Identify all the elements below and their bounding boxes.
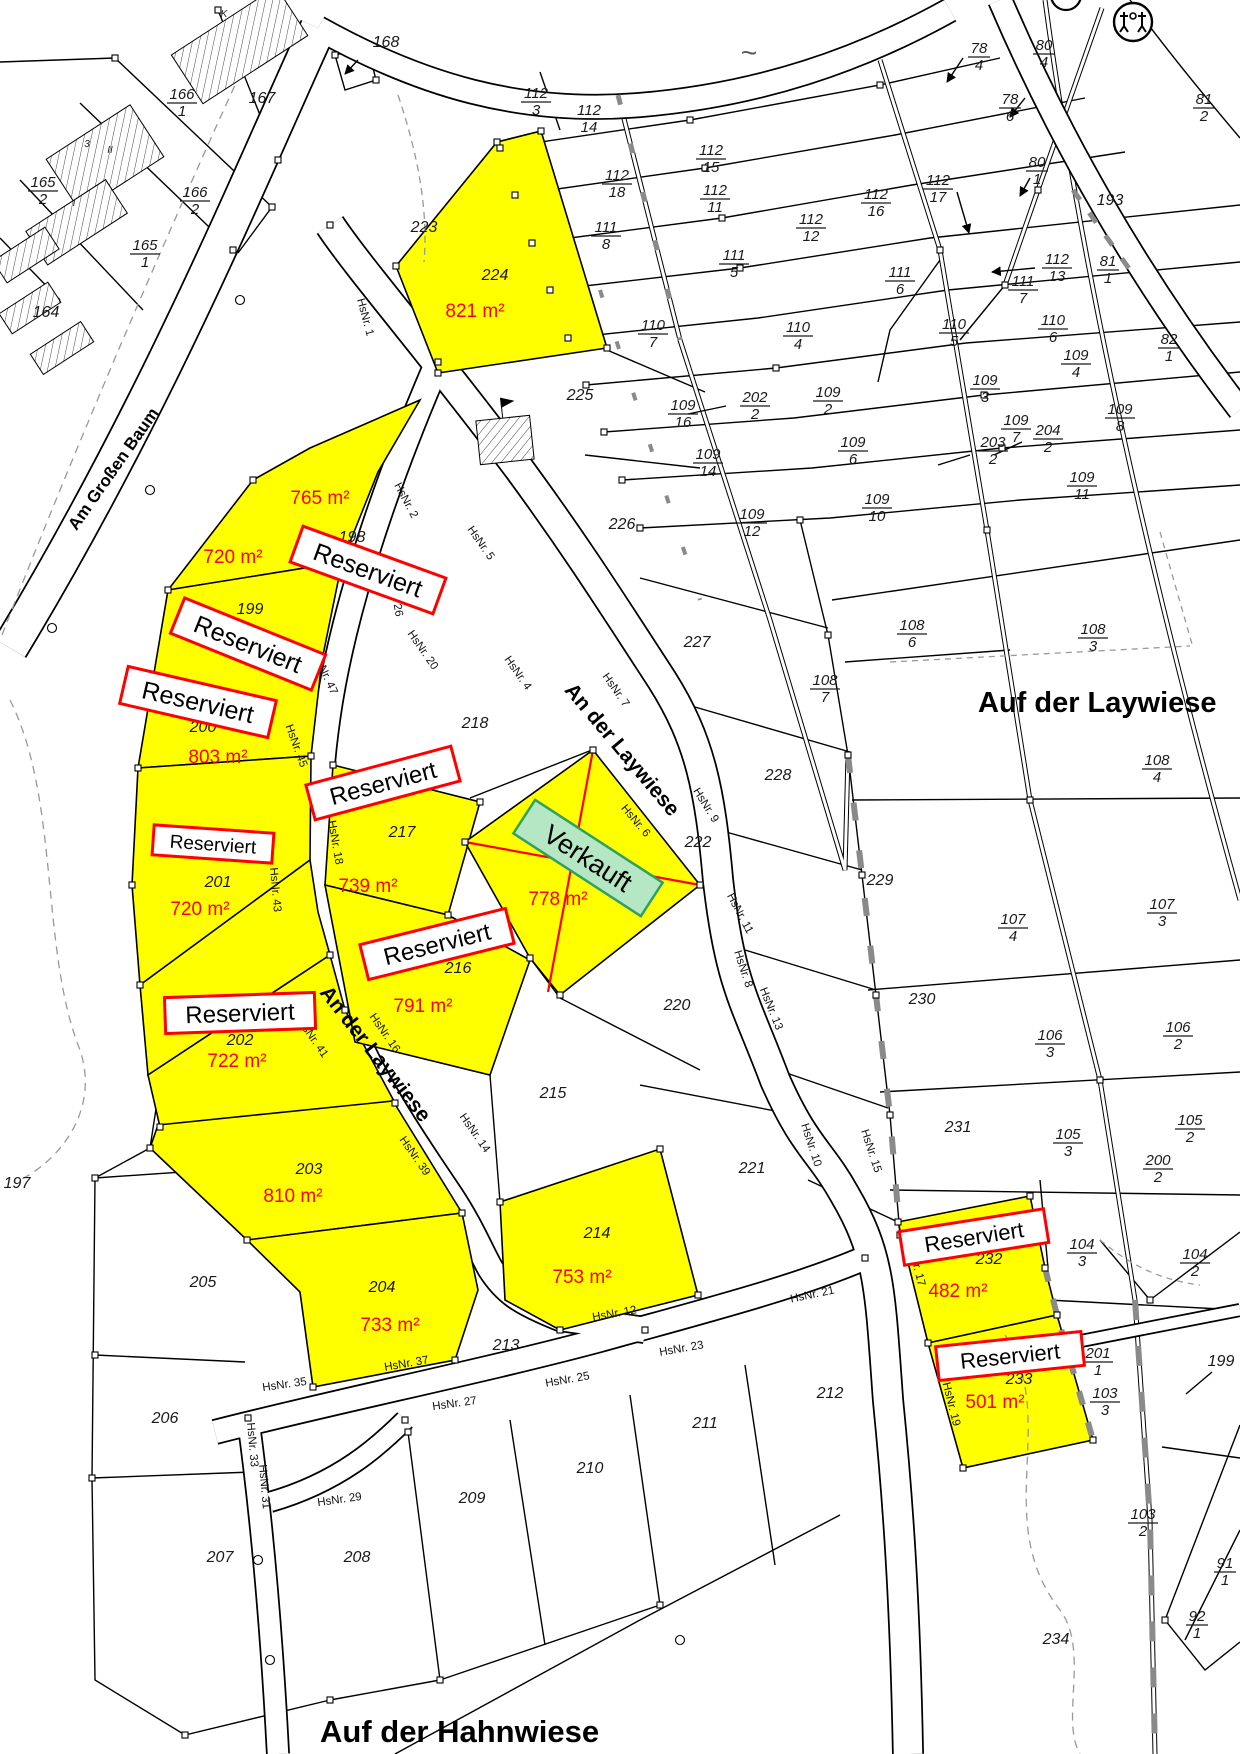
survey-point [873, 992, 879, 998]
svg-text:81: 81 [1196, 91, 1213, 108]
survey-point [497, 1199, 503, 1205]
svg-text:112: 112 [699, 142, 724, 159]
svg-text:4: 4 [1009, 928, 1017, 945]
survey-point [330, 762, 336, 768]
svg-text:110: 110 [641, 317, 666, 334]
svg-text:112: 112 [799, 211, 824, 228]
svg-text:166: 166 [169, 86, 195, 103]
survey-point [244, 1237, 250, 1243]
svg-text:15: 15 [703, 159, 720, 176]
parcel-number-167: 167 [249, 90, 277, 107]
svg-text:10: 10 [869, 508, 886, 525]
svg-text:2: 2 [750, 406, 760, 423]
svg-text:109: 109 [670, 397, 696, 414]
svg-text:104: 104 [1182, 1246, 1207, 1263]
parcel-number-230: 230 [908, 991, 936, 1008]
plot-area-label-217: 739 m² [338, 876, 397, 897]
survey-point [1027, 1193, 1033, 1199]
parcel-number-217: 217 [388, 824, 417, 841]
parcel-number-204: 204 [368, 1279, 396, 1296]
parcel-number-199: 199 [1208, 1353, 1235, 1370]
survey-point [877, 82, 883, 88]
survey-point [1147, 1297, 1153, 1303]
survey-point [165, 587, 171, 593]
svg-text:12: 12 [744, 523, 761, 540]
survey-point [245, 1415, 251, 1421]
survey-point [373, 77, 379, 83]
survey-point [275, 157, 281, 163]
svg-text:3: 3 [1064, 1143, 1073, 1160]
parcel-number-213: 213 [492, 1337, 520, 1354]
survey-point [157, 1124, 163, 1130]
survey-point [392, 1100, 398, 1106]
survey-point [657, 1602, 663, 1608]
svg-text:80: 80 [1029, 154, 1046, 171]
survey-point [494, 139, 500, 145]
survey-point [182, 1732, 188, 1738]
parcel-number-164: 164 [33, 304, 60, 321]
survey-point [327, 952, 333, 958]
survey-point [1002, 282, 1008, 288]
plot-area-label-214: 753 m² [552, 1267, 611, 1288]
survey-point [557, 1327, 563, 1333]
survey-point-round [48, 624, 57, 633]
street-name-auf-der-hahnwiese: Auf der Hahnwiese [320, 1714, 599, 1749]
svg-text:112: 112 [577, 102, 602, 119]
parcel-number-215: 215 [539, 1085, 567, 1102]
survey-point [452, 1357, 458, 1363]
svg-text:111: 111 [889, 264, 912, 281]
svg-text:1: 1 [141, 254, 149, 271]
svg-text:2: 2 [1153, 1169, 1163, 1186]
plot-area-label-200: 803 m² [188, 747, 247, 768]
survey-point [1090, 1437, 1096, 1443]
survey-point [984, 527, 990, 533]
parcel-number-197: 197 [4, 1175, 32, 1192]
svg-text:109: 109 [695, 446, 721, 463]
survey-point [527, 955, 533, 961]
svg-text:2: 2 [1173, 1036, 1183, 1053]
survey-point [887, 1112, 893, 1118]
survey-point [1162, 1617, 1168, 1623]
svg-text:80: 80 [1036, 37, 1053, 54]
survey-point [445, 912, 451, 918]
svg-text:109: 109 [1003, 412, 1029, 429]
svg-text:112: 112 [703, 182, 728, 199]
parcel-number-234: 234 [1042, 1631, 1070, 1648]
svg-text:2: 2 [1199, 108, 1209, 125]
survey-point [92, 1352, 98, 1358]
parcel-number-193: 193 [1097, 192, 1124, 209]
reserved-badge-202: Reserviert [164, 992, 315, 1033]
survey-point [859, 872, 865, 878]
parcel-number-206: 206 [151, 1410, 179, 1427]
survey-point [697, 882, 703, 888]
svg-text:4: 4 [794, 336, 802, 353]
building-mark-label: I [73, 198, 76, 209]
svg-text:200: 200 [1144, 1152, 1171, 1169]
parcel-number-210: 210 [576, 1460, 604, 1477]
svg-text:8: 8 [1116, 418, 1125, 435]
svg-text:109: 109 [840, 434, 866, 451]
svg-text:6: 6 [908, 634, 917, 651]
survey-point [1097, 1077, 1103, 1083]
parcel-number-231: 231 [944, 1119, 972, 1136]
building-mark-label: II [107, 145, 113, 156]
svg-text:1: 1 [1193, 1625, 1201, 1642]
svg-text:Reserviert: Reserviert [185, 998, 296, 1029]
svg-text:3: 3 [1078, 1253, 1087, 1270]
svg-text:3: 3 [1089, 638, 1098, 655]
survey-point [960, 1465, 966, 1471]
svg-text:3: 3 [1158, 913, 1167, 930]
svg-text:166: 166 [182, 184, 208, 201]
svg-text:78: 78 [971, 40, 988, 57]
svg-text:1: 1 [1033, 171, 1041, 188]
survey-point [402, 1417, 408, 1423]
svg-text:6: 6 [1049, 329, 1058, 346]
survey-point [862, 1255, 868, 1261]
svg-text:92: 92 [1189, 1608, 1206, 1625]
survey-point [393, 263, 399, 269]
survey-point [619, 477, 625, 483]
svg-text:14: 14 [581, 119, 598, 136]
survey-point [642, 1327, 648, 1333]
parcel-number-202: 202 [226, 1032, 254, 1049]
svg-text:1: 1 [1221, 1572, 1229, 1589]
svg-text:4: 4 [1153, 769, 1161, 786]
survey-point [332, 52, 338, 58]
parcel-number-221: 221 [738, 1160, 766, 1177]
parcel-number-220: 220 [663, 997, 691, 1014]
survey-point [147, 1145, 153, 1151]
svg-text:16: 16 [868, 203, 885, 220]
svg-text:5: 5 [950, 333, 959, 350]
svg-text:2: 2 [988, 451, 998, 468]
cadastral-map: 1671681641931971981992002012022032042052… [0, 0, 1240, 1754]
svg-text:112: 112 [605, 167, 630, 184]
svg-text:7: 7 [649, 334, 658, 351]
svg-text:4: 4 [1072, 364, 1080, 381]
svg-text:109: 109 [1063, 347, 1089, 364]
parcel-number-199: 199 [237, 601, 264, 618]
svg-text:107: 107 [1000, 911, 1026, 928]
survey-point [308, 753, 314, 759]
street-name-auf-der-laywiese: Auf der Laywiese [978, 687, 1217, 719]
survey-point [1027, 797, 1033, 803]
svg-text:7: 7 [1019, 290, 1028, 307]
parcel-number-224: 224 [481, 267, 509, 284]
svg-text:14: 14 [700, 463, 717, 480]
svg-text:3: 3 [532, 102, 541, 119]
svg-text:11: 11 [1074, 486, 1090, 503]
parcel-number-216: 216 [444, 960, 472, 977]
plot-area-label-224: 821 m² [445, 301, 504, 322]
svg-text:6: 6 [1006, 108, 1015, 125]
svg-text:104: 104 [1069, 1236, 1094, 1253]
survey-point [773, 365, 779, 371]
svg-text:109: 109 [1069, 469, 1095, 486]
survey-point [687, 117, 693, 123]
parcel-number-201: 201 [204, 874, 232, 891]
survey-point [459, 1210, 465, 1216]
survey-point [477, 799, 483, 805]
svg-text:7: 7 [1012, 429, 1021, 446]
survey-point [435, 359, 441, 365]
survey-point [529, 240, 535, 246]
svg-text:112: 112 [926, 172, 951, 189]
parcel-number-225: 225 [566, 387, 594, 404]
parcel-number-223: 223 [410, 219, 438, 236]
survey-point [845, 752, 851, 758]
parcel-number-209: 209 [458, 1490, 486, 1507]
survey-point [435, 370, 441, 376]
survey-point-round [266, 1656, 275, 1665]
svg-text:2: 2 [38, 191, 48, 208]
svg-text:109: 109 [1107, 401, 1133, 418]
svg-text:3: 3 [981, 389, 990, 406]
svg-text:109: 109 [864, 491, 890, 508]
svg-text:106: 106 [1037, 1027, 1063, 1044]
survey-point [695, 1292, 701, 1298]
survey-point [557, 992, 563, 998]
svg-text:202: 202 [741, 389, 768, 406]
svg-text:105: 105 [1177, 1112, 1203, 1129]
svg-text:165: 165 [30, 174, 56, 191]
parcel-number-229: 229 [866, 872, 894, 889]
svg-text:13: 13 [1049, 268, 1066, 285]
svg-text:1: 1 [1165, 348, 1173, 365]
survey-point [405, 1429, 411, 1435]
svg-text:108: 108 [812, 672, 838, 689]
svg-text:12: 12 [803, 228, 820, 245]
svg-text:165: 165 [132, 237, 158, 254]
parcel-number-205: 205 [189, 1274, 217, 1291]
parcel-number-208: 208 [343, 1549, 371, 1566]
survey-point [601, 429, 607, 435]
survey-point [462, 839, 468, 845]
parcel-number-227: 227 [683, 634, 712, 651]
parcel-number-203: 203 [295, 1161, 323, 1178]
svg-text:81: 81 [1100, 253, 1117, 270]
svg-text:1: 1 [1104, 270, 1112, 287]
survey-point [92, 1175, 98, 1181]
svg-text:201: 201 [1084, 1345, 1110, 1362]
svg-text:2: 2 [823, 401, 833, 418]
plot-area-label-232: 482 m² [928, 1281, 987, 1302]
building-mark-label: 3 [84, 139, 90, 150]
survey-point [925, 1340, 931, 1346]
survey-point [590, 747, 596, 753]
svg-text:112: 112 [864, 186, 889, 203]
survey-point [437, 1677, 443, 1683]
svg-text:2: 2 [190, 201, 200, 218]
plot-area-label-198: 765 m² [290, 488, 349, 509]
reserved-badge-201: Reserviert [152, 825, 274, 863]
svg-text:110: 110 [942, 316, 967, 333]
parcel-number-218: 218 [461, 715, 489, 732]
svg-text:108: 108 [899, 617, 925, 634]
map-canvas[interactable]: 1671681641931971981992002012022032042052… [0, 0, 1240, 1754]
survey-point [657, 1146, 663, 1152]
svg-text:112: 112 [524, 85, 549, 102]
svg-text:105: 105 [1055, 1126, 1081, 1143]
survey-point-round [236, 296, 245, 305]
svg-text:109: 109 [815, 384, 841, 401]
svg-text:2: 2 [1185, 1129, 1195, 1146]
svg-text:204: 204 [1034, 422, 1060, 439]
svg-text:3: 3 [1101, 1402, 1110, 1419]
svg-text:3: 3 [1046, 1044, 1055, 1061]
survey-point [565, 335, 571, 341]
survey-point [135, 765, 141, 771]
svg-text:5: 5 [730, 264, 739, 281]
plot-area-label-201: 720 m² [170, 899, 229, 920]
svg-text:7: 7 [821, 689, 830, 706]
plot-area-label-199: 720 m² [203, 547, 262, 568]
svg-text:106: 106 [1165, 1019, 1191, 1036]
survey-point [895, 1219, 901, 1225]
survey-point-round [676, 1636, 685, 1645]
svg-text:2: 2 [1043, 439, 1053, 456]
plot-area-label-216: 791 m² [393, 996, 452, 1017]
survey-point [230, 247, 236, 253]
survey-point [327, 222, 333, 228]
survey-point [1042, 1265, 1048, 1271]
svg-text:8: 8 [602, 236, 611, 253]
svg-text:109: 109 [972, 372, 998, 389]
svg-text:4: 4 [1040, 54, 1048, 71]
parcel-number-212: 212 [816, 1385, 844, 1402]
svg-text:78: 78 [1002, 91, 1019, 108]
svg-text:103: 103 [1092, 1385, 1118, 1402]
survey-point [797, 517, 803, 523]
parcel-number-226: 226 [608, 516, 636, 533]
survey-point [937, 247, 943, 253]
survey-point [604, 345, 610, 351]
svg-text:82: 82 [1161, 331, 1178, 348]
svg-text:6: 6 [896, 281, 905, 298]
survey-point [250, 477, 256, 483]
plot-area-label-203: 810 m² [263, 1186, 322, 1207]
survey-point [825, 632, 831, 638]
svg-text:1: 1 [178, 103, 186, 120]
svg-text:108: 108 [1144, 752, 1170, 769]
parcel-number-168: 168 [373, 34, 400, 51]
survey-point-round [146, 486, 155, 495]
parcel-number-214: 214 [583, 1225, 611, 1242]
svg-text:16: 16 [675, 414, 692, 431]
survey-point [497, 145, 503, 151]
svg-text:1: 1 [1094, 1362, 1102, 1379]
svg-text:109: 109 [739, 506, 765, 523]
tilde-water-mark: ~ [741, 37, 757, 68]
survey-point [327, 1697, 333, 1703]
svg-text:4: 4 [975, 57, 983, 74]
svg-text:2: 2 [1190, 1263, 1200, 1280]
survey-point [89, 1475, 95, 1481]
svg-text:111: 111 [723, 247, 746, 264]
survey-point [547, 287, 553, 293]
svg-text:18: 18 [609, 184, 626, 201]
svg-text:110: 110 [1041, 312, 1066, 329]
plot-area-label-222: 778 m² [528, 889, 587, 910]
svg-text:203: 203 [979, 434, 1006, 451]
svg-text:111: 111 [595, 219, 618, 236]
plot-area-label-233: 501 m² [965, 1392, 1024, 1413]
svg-text:107: 107 [1149, 896, 1175, 913]
parcel-number-222: 222 [684, 834, 712, 851]
survey-point [637, 525, 643, 531]
survey-point [538, 128, 544, 134]
svg-text:103: 103 [1130, 1506, 1156, 1523]
survey-point [310, 1384, 316, 1390]
parcel-number-228: 228 [764, 767, 792, 784]
survey-point [269, 204, 275, 210]
svg-text:11: 11 [707, 199, 723, 216]
plot-area-label-204: 733 m² [360, 1315, 419, 1336]
svg-text:111: 111 [1012, 273, 1035, 290]
plot-area-label-202: 722 m² [207, 1051, 266, 1072]
survey-point [137, 982, 143, 988]
parcel-number-207: 207 [206, 1549, 235, 1566]
svg-text:2: 2 [1138, 1523, 1148, 1540]
svg-text:110: 110 [786, 319, 811, 336]
svg-text:91: 91 [1217, 1555, 1234, 1572]
survey-point [112, 55, 118, 61]
svg-text:17: 17 [930, 189, 947, 206]
survey-point [512, 192, 518, 198]
parcel-number-211: 211 [691, 1415, 718, 1432]
survey-point-round [254, 1556, 263, 1565]
survey-point [129, 882, 135, 888]
svg-text:6: 6 [849, 451, 858, 468]
svg-text:112: 112 [1045, 251, 1070, 268]
survey-point [1054, 1312, 1060, 1318]
svg-text:108: 108 [1080, 621, 1106, 638]
